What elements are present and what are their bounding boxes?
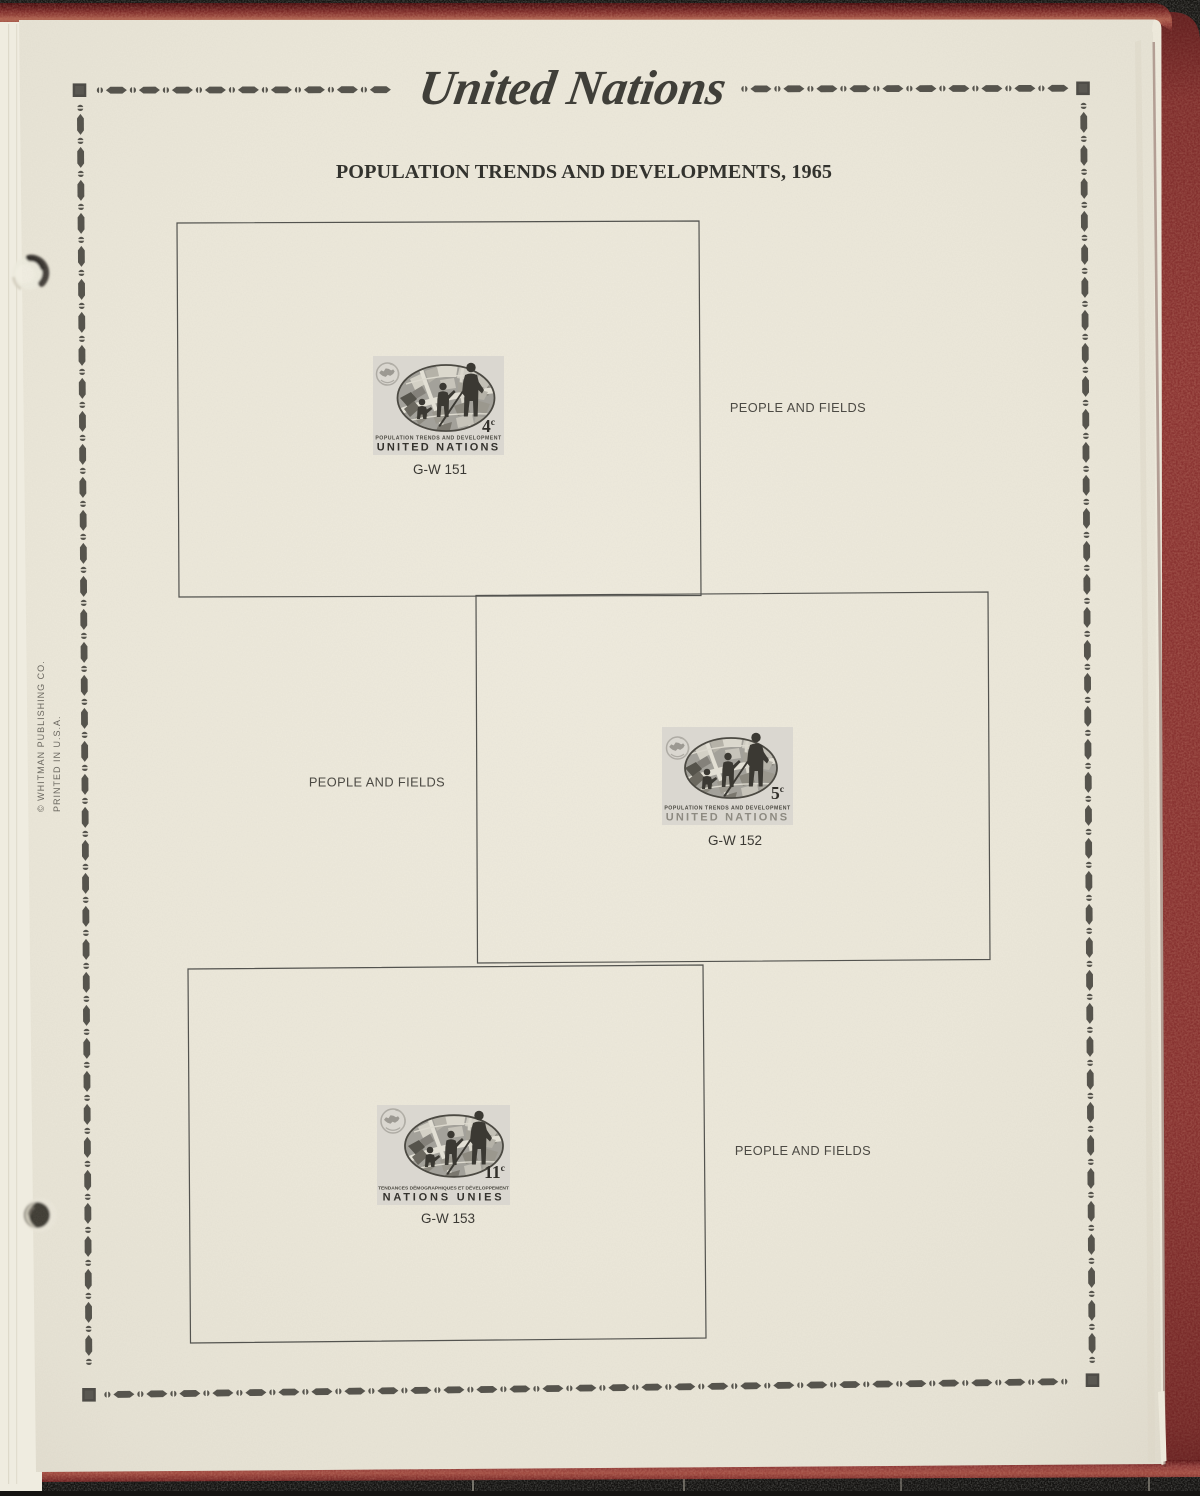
- svg-text:PEOPLE AND FIELDS: PEOPLE AND FIELDS: [730, 400, 866, 415]
- svg-text:United Nations: United Nations: [415, 60, 730, 115]
- svg-text:G-W 152: G-W 152: [708, 833, 762, 848]
- svg-text:© WHITMAN PUBLISHING CO.: © WHITMAN PUBLISHING CO.: [36, 660, 46, 812]
- svg-text:UNITED NATIONS: UNITED NATIONS: [377, 442, 500, 454]
- svg-text:PEOPLE AND FIELDS: PEOPLE AND FIELDS: [735, 1143, 871, 1158]
- svg-text:PRINTED IN U.S.A.: PRINTED IN U.S.A.: [52, 715, 62, 812]
- svg-text:UNITED NATIONS: UNITED NATIONS: [666, 812, 789, 824]
- svg-text:NATIONS UNIES: NATIONS UNIES: [383, 1192, 505, 1204]
- svg-text:G-W 153: G-W 153: [421, 1211, 475, 1226]
- svg-text:POPULATION TRENDS AND DEVELOPM: POPULATION TRENDS AND DEVELOPMENTS, 1965: [336, 161, 832, 183]
- svg-text:PEOPLE AND FIELDS: PEOPLE AND FIELDS: [309, 775, 445, 790]
- svg-text:G-W 151: G-W 151: [413, 462, 467, 477]
